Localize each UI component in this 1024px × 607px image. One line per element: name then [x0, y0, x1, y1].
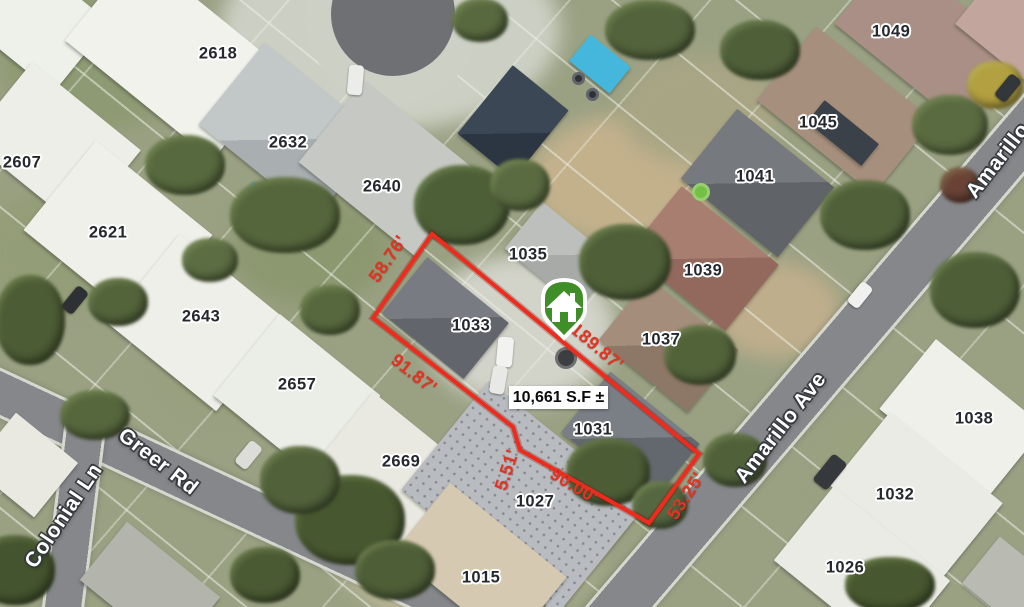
satellite-map-view[interactable]: Colonial LnGreer RdAmarillo AveAmarillo …: [0, 0, 1024, 607]
home-marker-icon[interactable]: [538, 278, 590, 340]
parcel-outline: [0, 0, 1024, 607]
lot-area-label: 10,661 S.F ±: [509, 386, 608, 409]
